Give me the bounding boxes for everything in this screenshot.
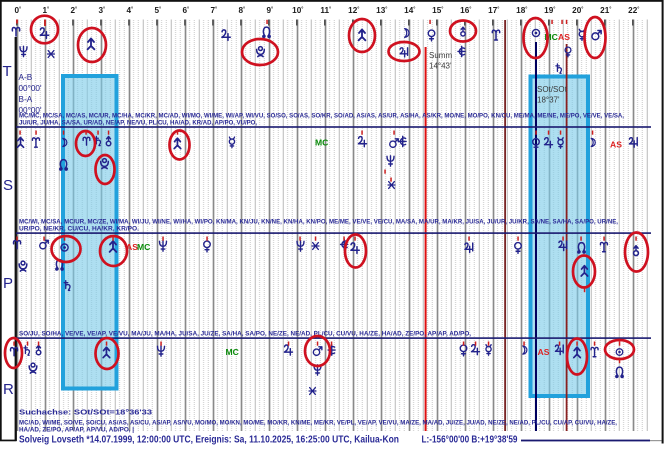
svg-text:10°: 10° [292,6,303,15]
svg-text:MC/AD, WI/ME, SO/VE, SO/CU, AS: MC/AD, WI/ME, SO/VE, SO/CU, AS/AS, AS/CU… [19,421,617,427]
svg-text:20°: 20° [572,6,583,15]
svg-text:Suchachse: SOt/SOt=18°36'33: Suchachse: SOt/SOt=18°36'33 [19,408,152,417]
svg-text:13°: 13° [376,6,387,15]
svg-text:MC/WI, MC/SA, MC/UR, MC/ZE, WI: MC/WI, MC/SA, MC/UR, MC/ZE, WI/MA, WI/JU… [19,220,618,226]
svg-text:21°: 21° [600,6,611,15]
svg-text:9°: 9° [266,6,273,15]
svg-text:16°: 16° [460,6,471,15]
svg-text:R: R [3,381,14,398]
svg-text:MC/MC, MC/SA, MC/AS, MC/UR, MC: MC/MC, MC/SA, MC/AS, MC/UR, MC/HA, MC/KR… [19,114,624,120]
svg-text:12°: 12° [348,6,359,15]
svg-text:0°: 0° [14,6,21,15]
svg-text:2°: 2° [70,6,77,15]
svg-text:B-A: B-A [19,95,33,104]
svg-text:JU/UR, JU/HA, SA/SA, UR/AD, NE: JU/UR, JU/HA, SA/SA, UR/AD, NE/AP, NE/VU… [19,121,257,127]
svg-text:SOt/SOt: SOt/SOt [537,85,568,94]
svg-text:1°: 1° [42,6,49,15]
svg-text:MC: MC [137,242,150,252]
svg-text:4°: 4° [126,6,133,15]
svg-text:17°: 17° [488,6,499,15]
svg-text:18°37': 18°37' [537,96,560,105]
svg-text:UR/PO, NE/KR, CU/CU, HA/KR, KR: UR/PO, NE/KR, CU/CU, HA/KR, KR/PO. [19,227,139,233]
svg-text:00°00': 00°00' [19,84,42,93]
svg-text:Solveig Lovseth *14.07.1999,: Solveig Lovseth *14.07.1999, 12:00:00 UT… [19,435,399,446]
svg-text:A-B: A-B [19,73,33,82]
svg-text:HA/AD, ZE/PO, AP/AP, AP/VU, AD: HA/AD, ZE/PO, AP/AP, AP/VU, AD/PO, | [19,428,134,434]
svg-text:7°: 7° [210,6,217,15]
svg-text:SO/JU, SO/HA, VE/VE, VE/AP, VE: SO/JU, SO/HA, VE/VE, VE/AP, VE/VU, MA/JU… [19,331,471,337]
svg-text:AS: AS [558,32,570,42]
svg-text:5°: 5° [154,6,161,15]
svg-text:Summ: Summ [429,51,452,60]
svg-text:14°: 14° [404,6,415,15]
svg-text:19°: 19° [544,6,555,15]
svg-text:AS: AS [610,140,622,150]
svg-text:6°: 6° [182,6,189,15]
svg-text:L:-156°00'00 B:+19°38'59: L:-156°00'00 B:+19°38'59 [422,435,518,446]
svg-text:MC: MC [226,347,239,357]
svg-text:3°: 3° [98,6,105,15]
svg-text:T: T [3,63,12,80]
svg-text:11°: 11° [320,6,331,15]
svg-text:15°: 15° [432,6,443,15]
svg-text:MC: MC [315,138,328,148]
svg-text:AS: AS [538,347,550,357]
svg-text:S: S [3,177,13,194]
svg-text:8°: 8° [238,6,245,15]
svg-text:P: P [3,275,13,292]
svg-text:18°: 18° [516,6,527,15]
svg-text:14°43': 14°43' [429,62,452,71]
svg-text:22°: 22° [628,6,639,15]
